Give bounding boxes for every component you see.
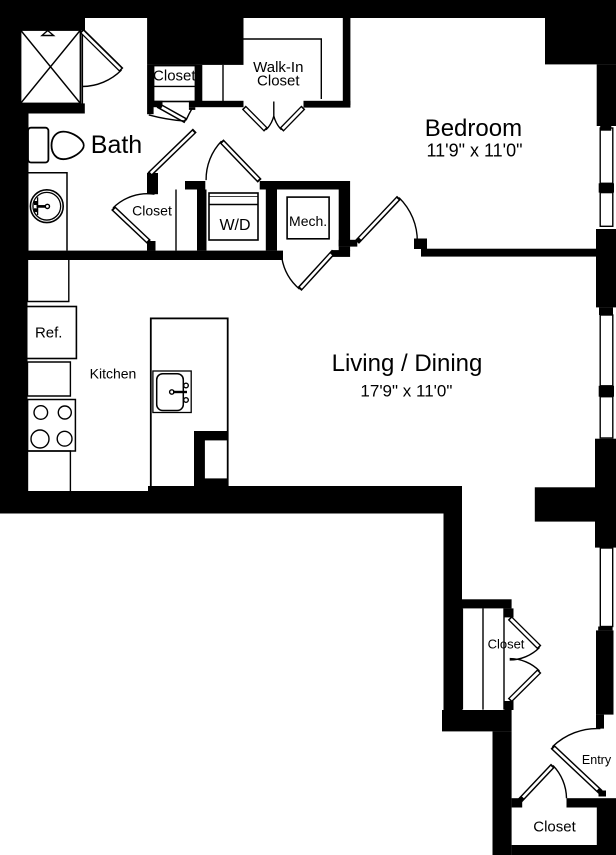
svg-text:Closet: Closet [132, 203, 172, 219]
svg-text:Closet: Closet [257, 73, 300, 90]
svg-text:Entry: Entry [582, 753, 612, 767]
svg-text:Closet: Closet [153, 68, 196, 85]
svg-text:Bath: Bath [91, 131, 142, 159]
svg-text:17'9" x 11'0": 17'9" x 11'0" [360, 382, 452, 401]
svg-text:Living / Dining: Living / Dining [332, 350, 483, 377]
svg-text:Ref.: Ref. [35, 325, 63, 342]
svg-text:Closet: Closet [488, 637, 525, 652]
svg-text:Mech.: Mech. [289, 213, 327, 229]
svg-text:Bedroom: Bedroom [425, 115, 522, 142]
svg-text:Closet: Closet [533, 819, 576, 836]
svg-text:11'9" x 11'0": 11'9" x 11'0" [426, 141, 522, 161]
svg-text:W/D: W/D [219, 217, 250, 234]
svg-text:Kitchen: Kitchen [90, 366, 137, 382]
